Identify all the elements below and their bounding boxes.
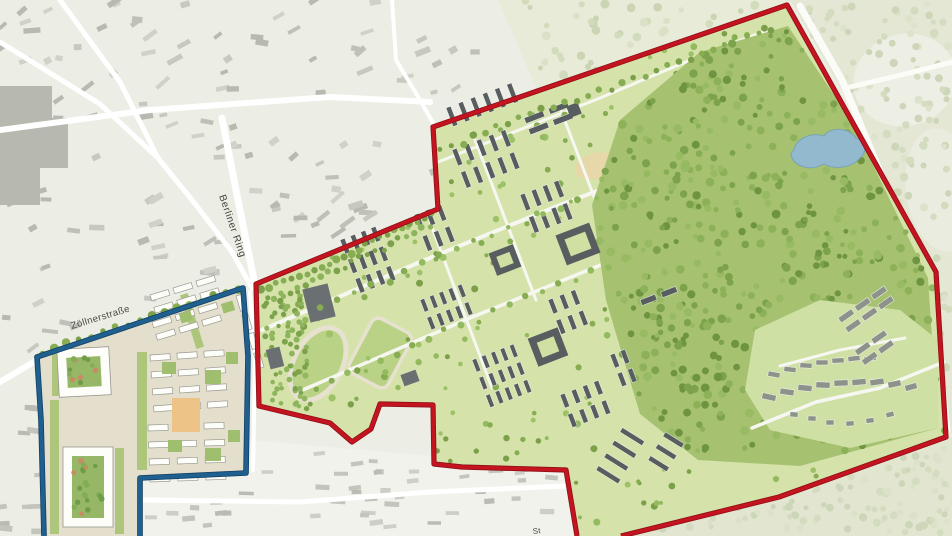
tree-dot <box>935 74 943 82</box>
tree-dot <box>524 221 529 226</box>
background-building <box>360 513 369 518</box>
tree-dot <box>540 289 545 294</box>
tree-dot <box>656 319 663 326</box>
tree-dot <box>279 386 284 391</box>
tree-dot <box>911 466 917 472</box>
tree-dot <box>695 164 702 171</box>
tree-dot <box>458 322 465 329</box>
tree-dot <box>784 112 791 119</box>
tree-dot <box>691 302 697 308</box>
tree-dot <box>830 36 836 42</box>
tree-dot <box>681 164 686 169</box>
tree-dot <box>719 340 724 345</box>
tree-dot <box>692 141 700 149</box>
tree-dot <box>786 236 793 243</box>
tree-dot <box>497 184 502 189</box>
tree-dot <box>689 69 697 77</box>
background-building <box>380 488 390 494</box>
tree-dot <box>905 521 913 529</box>
tree-dot <box>806 210 811 215</box>
tree-dot <box>72 505 77 510</box>
tree-dot <box>286 330 291 335</box>
tree-dot <box>723 76 731 84</box>
background-building <box>28 504 41 509</box>
background-building <box>190 505 199 511</box>
tree-dot <box>425 336 432 343</box>
tree-dot <box>835 290 841 296</box>
tree-dot <box>417 270 423 276</box>
tree-dot <box>732 34 738 40</box>
tree-dot <box>550 105 557 112</box>
tree-dot <box>693 118 699 124</box>
tree-dot <box>844 525 851 532</box>
tree-dot <box>599 177 604 182</box>
tree-dot <box>325 268 331 274</box>
tree-dot <box>836 484 842 490</box>
tree-dot <box>905 468 910 473</box>
tree-dot <box>273 280 279 286</box>
tree-dot <box>755 76 761 82</box>
background-building <box>540 509 554 515</box>
tree-dot <box>911 23 917 29</box>
tree-dot <box>671 370 678 377</box>
tree-dot <box>767 111 773 117</box>
tree-dot <box>938 494 944 500</box>
tree-dot <box>609 206 614 211</box>
perimeter-block-north <box>57 347 111 398</box>
background-building <box>352 490 362 494</box>
tree-dot <box>641 247 646 252</box>
tree-dot <box>813 262 820 269</box>
tree-dot <box>897 501 903 507</box>
tree-dot <box>395 385 400 390</box>
tree-dot <box>438 431 442 435</box>
blue-area-green-strips <box>50 400 59 534</box>
tree-dot <box>294 345 299 350</box>
tree-dot <box>609 88 614 93</box>
tree-dot <box>702 282 709 289</box>
tree-dot <box>454 246 460 252</box>
tree-dot <box>789 277 797 285</box>
tree-dot <box>705 56 713 64</box>
tree-dot <box>673 338 678 343</box>
blue-area-pocket-greens <box>226 352 238 364</box>
tree-dot <box>540 134 546 140</box>
background-building <box>369 459 378 463</box>
tree-dot <box>842 254 847 259</box>
settlement-row-houses <box>808 416 816 421</box>
tree-dot <box>487 422 493 428</box>
tree-dot <box>596 86 602 92</box>
tree-dot <box>893 216 898 221</box>
tree-dot <box>559 56 565 62</box>
tree-dot <box>731 340 739 348</box>
tree-dot <box>733 364 740 371</box>
tree-dot <box>679 366 687 374</box>
tree-dot <box>654 333 659 338</box>
tree-dot <box>344 369 351 376</box>
tree-dot <box>449 192 454 197</box>
tree-dot <box>715 363 722 370</box>
tree-dot <box>872 507 878 513</box>
tree-dot <box>722 42 727 47</box>
tree-dot <box>450 410 455 415</box>
tree-dot <box>713 77 721 85</box>
tree-dot <box>837 497 843 503</box>
tree-dot <box>755 509 761 515</box>
tree-dot <box>274 386 280 392</box>
tree-dot <box>647 211 654 218</box>
background-building <box>25 405 35 411</box>
tree-dot <box>886 528 892 534</box>
tree-dot <box>702 444 709 451</box>
tree-dot <box>686 201 694 209</box>
tree-dot <box>865 505 871 511</box>
tree-dot <box>449 179 454 184</box>
settlement-row-houses <box>846 421 854 426</box>
tree-dot <box>895 472 900 477</box>
tree-dot <box>718 411 724 417</box>
tree-dot <box>722 31 728 37</box>
settlement-row-houses <box>826 420 834 425</box>
tree-dot <box>631 305 636 310</box>
tree-dot <box>278 370 283 375</box>
tree-dot <box>462 336 468 342</box>
tree-dot <box>712 402 718 408</box>
tree-dot <box>726 380 733 387</box>
tree-dot <box>702 107 707 112</box>
tree-dot <box>905 192 913 200</box>
tree-dot <box>759 41 766 48</box>
blue-area-white-blocks-unit <box>177 352 197 359</box>
tree-dot <box>681 336 686 341</box>
tree-dot <box>773 476 779 482</box>
tree-dot <box>877 39 882 44</box>
blue-area-pocket-greens <box>162 362 176 374</box>
tree-dot <box>348 401 354 407</box>
tree-dot <box>664 62 670 68</box>
background-building <box>518 478 527 483</box>
tree-dot <box>310 277 316 283</box>
tree-dot <box>703 308 709 314</box>
tree-dot <box>930 517 936 523</box>
background-building <box>325 175 339 180</box>
tree-dot <box>282 339 288 345</box>
tree-dot <box>906 156 915 165</box>
tree-dot <box>768 27 775 34</box>
tree-dot <box>576 364 582 370</box>
tree-dot <box>293 386 298 391</box>
tree-dot <box>942 144 947 149</box>
tree-dot <box>921 163 927 169</box>
tree-dot <box>297 386 303 392</box>
tree-dot <box>692 374 700 382</box>
tree-dot <box>664 341 671 348</box>
tree-dot <box>626 255 631 260</box>
tree-dot <box>558 205 565 212</box>
tree-dot <box>812 488 817 493</box>
tree-dot <box>262 333 268 339</box>
tree-dot <box>670 362 676 368</box>
tree-dot <box>67 372 71 376</box>
tree-dot <box>668 324 675 331</box>
tree-dot <box>728 40 736 48</box>
tree-dot <box>695 448 700 453</box>
settlement-row-houses <box>816 382 830 388</box>
tree-dot <box>824 16 830 22</box>
tree-dot <box>326 331 333 338</box>
tree-dot <box>718 165 724 171</box>
tree-dot <box>85 507 91 513</box>
tree-dot <box>296 331 302 337</box>
tree-dot <box>532 411 537 416</box>
tree-dot <box>302 317 309 324</box>
tree-dot <box>941 481 948 488</box>
tree-dot <box>296 273 303 280</box>
tree-dot <box>475 326 480 331</box>
background-building <box>409 470 419 474</box>
tree-dot <box>332 255 340 263</box>
tree-dot <box>520 437 525 442</box>
tree-dot <box>574 278 579 283</box>
tree-dot <box>656 304 665 313</box>
tree-dot <box>789 250 797 258</box>
tree-dot <box>630 135 637 142</box>
settlement-row-houses <box>784 366 796 372</box>
tree-dot <box>405 273 410 278</box>
tree-dot <box>616 291 622 297</box>
tree-dot <box>628 330 635 337</box>
tree-dot <box>614 32 621 39</box>
tree-dot <box>471 238 476 243</box>
tree-dot <box>659 29 666 36</box>
tree-dot <box>727 279 734 286</box>
tree-dot <box>694 260 701 267</box>
tree-dot <box>921 101 927 107</box>
tree-dot <box>669 313 676 320</box>
tree-dot <box>884 487 892 495</box>
tree-dot <box>581 114 585 118</box>
tree-dot <box>685 436 692 443</box>
tree-dot <box>675 429 683 437</box>
tree-dot <box>799 97 806 104</box>
tree-dot <box>537 105 544 112</box>
tree-dot <box>837 254 842 259</box>
tree-dot <box>619 201 628 210</box>
tree-dot <box>736 303 743 310</box>
tree-dot <box>890 59 898 67</box>
tree-dot <box>636 391 641 396</box>
tree-dot <box>474 448 479 453</box>
tree-dot <box>900 103 907 110</box>
tree-dot <box>303 282 309 288</box>
tree-dot <box>293 401 299 407</box>
tree-dot <box>842 5 849 12</box>
tree-dot <box>942 511 948 517</box>
tree-dot <box>924 455 929 460</box>
tree-dot <box>910 484 916 490</box>
tree-dot <box>713 207 718 212</box>
tree-dot <box>736 517 743 524</box>
tree-dot <box>311 267 317 273</box>
tree-dot <box>78 375 83 380</box>
tree-dot <box>851 510 858 517</box>
tree-dot <box>887 235 892 240</box>
tree-dot <box>827 9 834 16</box>
tree-dot <box>746 143 752 149</box>
tree-dot <box>278 382 282 386</box>
tree-dot <box>663 243 669 249</box>
tree-dot <box>747 125 753 131</box>
tree-dot <box>278 291 283 296</box>
tree-dot <box>848 3 856 11</box>
tree-dot <box>327 262 332 267</box>
tree-dot <box>933 470 940 477</box>
tree-dot <box>744 33 750 39</box>
tree-dot <box>741 343 750 352</box>
tree-dot <box>807 203 813 209</box>
tree-dot <box>767 510 774 517</box>
tree-dot <box>676 302 684 310</box>
tree-dot <box>759 97 764 102</box>
tree-dot <box>883 18 888 23</box>
blue-area-pocket-greens <box>205 370 221 384</box>
tree-dot <box>684 319 691 326</box>
tree-dot <box>297 297 303 303</box>
tree-dot <box>478 190 483 195</box>
tree-dot <box>873 519 881 527</box>
tree-dot <box>933 118 939 124</box>
tree-dot <box>503 435 509 441</box>
tree-dot <box>507 239 513 245</box>
tree-dot <box>718 314 727 323</box>
tree-dot <box>911 57 916 62</box>
tree-dot <box>943 166 950 173</box>
tree-dot <box>769 143 777 151</box>
tree-dot <box>771 173 779 181</box>
tree-dot <box>847 294 853 300</box>
tree-dot <box>866 49 872 55</box>
tree-dot <box>684 444 690 450</box>
tree-dot <box>506 225 511 230</box>
tree-dot <box>769 54 774 59</box>
tree-dot <box>593 519 600 526</box>
tree-dot <box>741 75 747 81</box>
tree-dot <box>700 427 705 432</box>
background-building <box>89 224 104 230</box>
tree-dot <box>71 356 77 362</box>
tree-dot <box>650 313 657 320</box>
tree-dot <box>458 362 463 367</box>
tree-dot <box>945 190 952 197</box>
tree-dot <box>265 284 273 292</box>
tree-dot <box>679 7 684 12</box>
tree-dot <box>436 251 442 257</box>
blue-area-green-strips <box>115 448 124 534</box>
tree-dot <box>696 150 703 157</box>
tree-dot <box>538 66 543 71</box>
tree-dot <box>449 143 454 148</box>
tree-dot <box>771 504 776 509</box>
tree-dot <box>658 415 665 422</box>
tree-dot <box>721 115 729 123</box>
tree-dot <box>341 253 348 260</box>
settlement-row-houses <box>790 412 798 418</box>
tree-dot <box>343 266 348 271</box>
tree-dot <box>349 258 354 263</box>
tree-dot <box>540 211 546 217</box>
tree-dot <box>749 313 755 319</box>
tree-dot <box>587 267 594 274</box>
tree-dot <box>93 464 97 468</box>
background-building <box>74 44 82 50</box>
tree-dot <box>477 320 482 325</box>
tree-dot <box>696 204 702 210</box>
tree-dot <box>680 284 688 292</box>
tree-dot <box>919 141 928 150</box>
tree-dot <box>797 525 804 532</box>
tree-dot <box>70 377 75 382</box>
tree-dot <box>803 217 808 222</box>
tree-dot <box>856 257 863 264</box>
tree-dot <box>314 387 319 392</box>
tree-dot <box>418 224 425 231</box>
tree-dot <box>751 222 757 228</box>
tree-dot <box>612 224 619 231</box>
tree-dot <box>764 67 770 73</box>
blue-area-white-blocks-unit <box>204 350 224 357</box>
tree-dot <box>856 249 863 256</box>
tree-dot <box>270 380 275 385</box>
tree-dot <box>905 15 913 23</box>
tree-dot <box>715 251 721 257</box>
tree-dot <box>644 239 652 247</box>
tree-dot <box>852 259 857 264</box>
tree-dot <box>382 369 388 375</box>
orange-plaza <box>172 398 200 432</box>
tree-dot <box>334 268 341 275</box>
tree-dot <box>781 228 788 235</box>
tree-dot <box>834 215 842 223</box>
tree-dot <box>659 501 663 505</box>
tree-dot <box>633 33 642 42</box>
tree-dot <box>285 324 290 329</box>
tree-dot <box>799 48 804 53</box>
tree-dot <box>640 329 648 337</box>
tree-dot <box>653 3 662 12</box>
tree-dot <box>766 173 771 178</box>
tree-dot <box>710 155 717 162</box>
tree-dot <box>937 508 943 514</box>
tree-dot <box>627 3 636 12</box>
tree-dot <box>531 233 536 238</box>
tree-dot <box>71 470 76 475</box>
tree-dot <box>283 307 288 312</box>
tree-dot <box>941 294 948 301</box>
tree-dot <box>837 207 846 216</box>
tree-dot <box>651 187 659 195</box>
tree-dot <box>872 219 879 226</box>
tree-dot <box>265 295 270 300</box>
tree-dot <box>912 43 919 50</box>
tree-dot <box>939 86 946 93</box>
tree-dot <box>618 79 625 86</box>
tree-dot <box>812 230 821 239</box>
background-building <box>446 511 459 515</box>
tree-dot <box>782 264 790 272</box>
tree-dot <box>373 248 378 253</box>
tree-dot <box>779 76 784 81</box>
